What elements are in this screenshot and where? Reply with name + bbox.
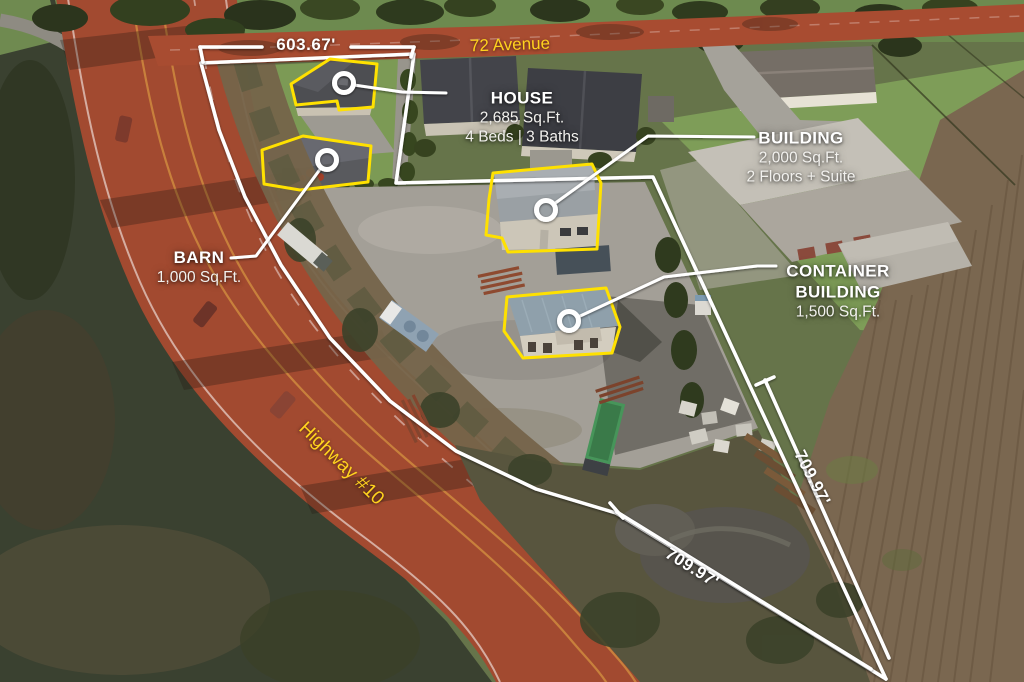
barn-callout-title: BARN (157, 247, 241, 268)
barn-marker (318, 151, 337, 170)
barn-callout: BARN 1,000 Sq.Ft. (157, 247, 241, 287)
building-marker (537, 201, 556, 220)
house-leader-line (354, 85, 446, 93)
building-callout-title: BUILDING (747, 128, 856, 149)
house-marker (335, 74, 354, 93)
aerial-property-photo: 603.67' 72 Avenue Highway #10 709.97' 70… (0, 0, 1024, 682)
house-callout-extra: 4 Beds | 3 Baths (465, 128, 578, 147)
house-callout-title: HOUSE (465, 88, 578, 109)
barn-callout-area: 1,000 Sq.Ft. (157, 268, 241, 287)
building-leader-line (554, 136, 754, 204)
dimension-line-east (756, 377, 889, 658)
container-callout-area: 1,500 Sq.Ft. (780, 303, 896, 322)
front-dimension-label: 603.67' (276, 35, 336, 55)
container-callout: CONTAINER BUILDING 1,500 Sq.Ft. (780, 261, 896, 322)
street-label-72-avenue: 72 Avenue (470, 34, 551, 57)
container-marker (560, 312, 579, 331)
house-callout-area: 2,685 Sq.Ft. (465, 109, 578, 128)
building-callout-extra: 2 Floors + Suite (747, 168, 856, 187)
house-callout: HOUSE 2,685 Sq.Ft. 4 Beds | 3 Baths (465, 88, 578, 147)
building-callout: BUILDING 2,000 Sq.Ft. 2 Floors + Suite (747, 128, 856, 187)
container-callout-title: CONTAINER BUILDING (780, 261, 896, 303)
building-callout-area: 2,000 Sq.Ft. (747, 149, 856, 168)
barn-leader-line (231, 168, 321, 258)
